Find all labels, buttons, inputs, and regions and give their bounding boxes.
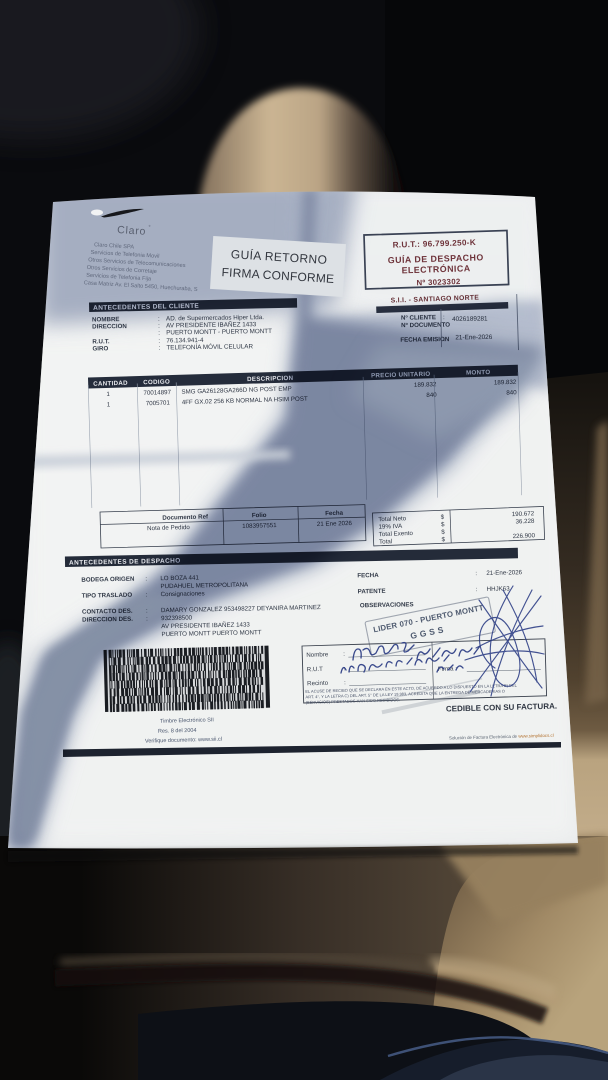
svg-text:CODIGO: CODIGO (143, 378, 170, 386)
svg-text:DESCRIPCION: DESCRIPCION (247, 375, 294, 383)
svg-text:Recinto: Recinto (307, 680, 329, 688)
svg-text:7005701: 7005701 (146, 400, 171, 408)
svg-text:R.U.T: R.U.T (307, 666, 324, 673)
svg-text:Total: Total (379, 538, 392, 545)
svg-text:TIPO TRASLADO: TIPO TRASLADO (82, 592, 133, 600)
svg-text:Res. 8 del 2004: Res. 8 del 2004 (158, 728, 197, 735)
svg-text:Nota de Pedido: Nota de Pedido (147, 524, 190, 532)
svg-text:GIRO: GIRO (92, 345, 108, 352)
svg-text:FECHA: FECHA (357, 572, 379, 579)
svg-text:CANTIDAD: CANTIDAD (93, 380, 128, 388)
svg-text:226.900: 226.900 (513, 532, 536, 540)
svg-text:HHJK63: HHJK63 (487, 585, 511, 592)
svg-text:Nº 3023302: Nº 3023302 (416, 277, 461, 287)
svg-text:21-Ene-2026: 21-Ene-2026 (486, 569, 522, 577)
svg-text:PATENTE: PATENTE (358, 588, 386, 596)
svg-text:OBSERVACIONES: OBSERVACIONES (360, 601, 414, 609)
svg-text:Nombre: Nombre (306, 651, 329, 659)
svg-text:ELECTRÓNICA: ELECTRÓNICA (401, 262, 470, 275)
svg-text:DIRECCION: DIRECCION (92, 323, 127, 330)
svg-text:PUERTO MONTT - PUERTO MONTT: PUERTO MONTT - PUERTO MONTT (166, 328, 272, 336)
svg-text:BODEGA ORIGEN: BODEGA ORIGEN (81, 576, 135, 584)
svg-text:36.228: 36.228 (515, 518, 535, 526)
svg-text:Total Exento: Total Exento (379, 530, 414, 538)
svg-text:70014897: 70014897 (143, 389, 171, 397)
